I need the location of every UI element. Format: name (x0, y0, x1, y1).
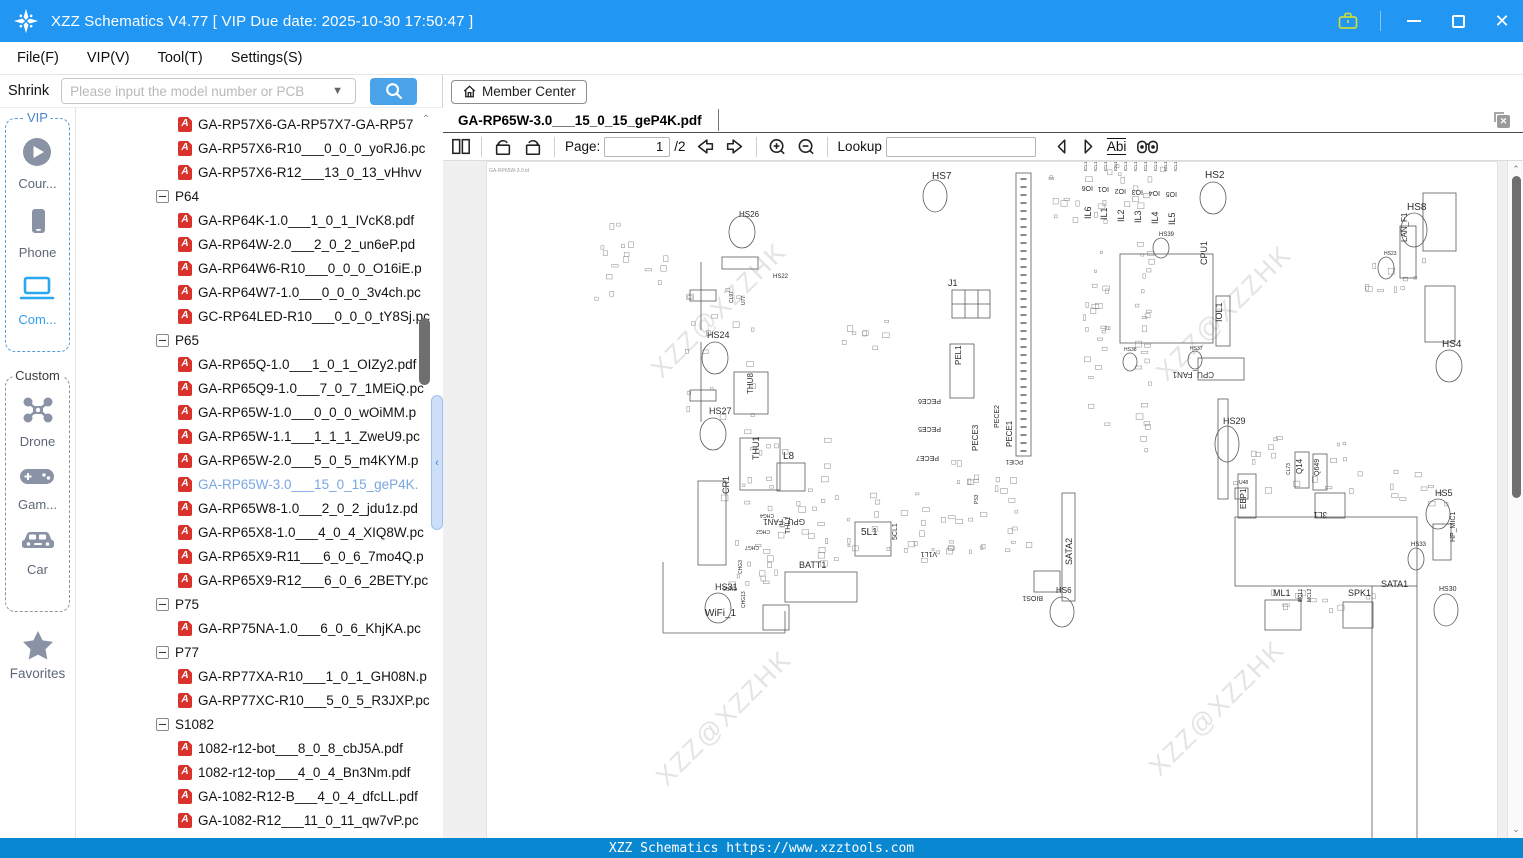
sidebar-item-favorites[interactable]: Favorites (0, 630, 75, 681)
page-number-input[interactable] (604, 137, 670, 157)
shrink-button[interactable]: Shrink (8, 83, 49, 99)
svg-text:ICL13: ICL13 (1103, 162, 1108, 171)
svg-text:HS33: HS33 (1411, 542, 1427, 548)
sidebar-item-cour[interactable]: Cour... (18, 135, 56, 191)
svg-text:IO3: IO3 (1132, 188, 1143, 195)
tree-item-label: GA-RP65X8-1.0___4_0_4_XIQ8W.pc (198, 525, 424, 540)
tree-item-label: GA-RP57X6-R10___0_0_0_yoRJ6.pc (198, 141, 425, 156)
tree-item-label: GC-RP64LED-R10___0_0_0_tY8Sj.pc (198, 309, 430, 324)
tree-file-row[interactable]: GA-1082-R12-B___4_0_4_dfcLL.pdf (76, 784, 443, 808)
tree-group-row[interactable]: P75 (76, 592, 443, 616)
find-prev-icon[interactable] (1053, 137, 1071, 156)
pdf-file-icon (178, 429, 192, 444)
tree-item-label: 1082-r12-top___4_0_4_Bn3Nm.pdf (198, 765, 410, 780)
svg-text:Q649: Q649 (1314, 459, 1321, 476)
tree-item-label: P64 (175, 189, 199, 204)
pdf-file-icon (178, 453, 192, 468)
svg-text:HS26: HS26 (739, 210, 760, 219)
collapse-minus-icon[interactable] (156, 646, 169, 659)
pdf-file-icon (178, 669, 192, 684)
tree-item-label: GA-RP65W-1.1___1_1_1_ZweU9.pc (198, 429, 420, 444)
pdf-file-icon (178, 213, 192, 228)
status-bar: XZZ Schematics https://www.xzztools.com (0, 838, 1523, 858)
match-case-toggle[interactable]: Abi (1107, 138, 1127, 155)
tree-file-row[interactable]: GA-RP64K-1.0___1_0_1_IVcK8.pdf (76, 208, 443, 232)
svg-text:IL1: IL1 (1099, 207, 1109, 220)
tree-item-label: 1082-r12-bot___8_0_8_cbJ5A.pdf (198, 741, 403, 756)
svg-text:CHG6: CHG6 (723, 585, 737, 591)
svg-text:MCL1: MCL1 (1298, 588, 1304, 602)
board-outlines (663, 173, 1462, 838)
pdf-file-icon (178, 285, 192, 300)
svg-text:XZZ@XZZHK: XZZ@XZZHK (650, 644, 798, 792)
play-circle-icon (20, 135, 54, 174)
pdf-file-icon (178, 165, 192, 180)
search-button[interactable] (370, 78, 417, 105)
svg-text:HP_MIC1: HP_MIC1 (1450, 512, 1457, 542)
lookup-label: Lookup (838, 139, 882, 154)
svg-text:HS2: HS2 (1205, 170, 1225, 181)
sidebar-item-car[interactable]: Car (19, 525, 57, 577)
pdf-file-icon (178, 357, 192, 372)
scroll-up-icon[interactable]: ⌃ (1508, 164, 1523, 175)
tree-item-label: GA-1082-R12___11_0_11_qw7vP.pc (198, 813, 419, 828)
component-labels: HS7HS26HS22HS24HS27L8HS31WiFi_1BATT15L1J… (705, 162, 1462, 619)
file-tree: GA-RP57X6-GA-RP57X7-GA-RP57GA-RP57X6-R10… (76, 108, 443, 838)
sidebar-item-label: Car (27, 562, 48, 577)
tree-item-label: P77 (175, 645, 199, 660)
sidebar-group-label: Custom (12, 368, 63, 383)
pdf-file-icon (178, 813, 192, 828)
home-icon (462, 84, 477, 99)
search-icon (384, 81, 404, 101)
svg-text:L8: L8 (783, 451, 795, 462)
svg-text:IL2: IL2 (1116, 209, 1126, 222)
svg-text:EBP1: EBP1 (1239, 488, 1248, 509)
tree-group-row[interactable]: P77 (76, 640, 443, 664)
svg-text:SATA1: SATA1 (1381, 579, 1408, 589)
svg-text:IOL1: IOL1 (1214, 302, 1224, 322)
svg-text:U48: U48 (1239, 480, 1248, 486)
svg-text:PECE2: PECE2 (994, 405, 1001, 428)
tree-file-row[interactable]: GA-RP65X9-R12___6_0_6_2BETY.pc (76, 568, 443, 592)
tree-file-row[interactable]: GA-RP77XC-R10___5_0_5_R3JXP.pc (76, 688, 443, 712)
collapse-minus-icon[interactable] (156, 334, 169, 347)
svg-text:U77: U77 (741, 296, 747, 305)
search-box: ▼ (61, 78, 356, 104)
phone-icon (21, 204, 55, 243)
tree-scrollbar-thumb[interactable] (419, 318, 430, 385)
tree-file-row[interactable]: GA-RP65W-3.0___15_0_15_geP4K. (76, 472, 443, 496)
pdf-page[interactable]: XZZ@XZZHKXZZ@XZZHKXZZ@XZZHKXZZ@XZZHKGA-R… (487, 162, 1497, 838)
tree-item-label: GA-RP64K-1.0___1_0_1_IVcK8.pdf (198, 213, 414, 228)
svg-text:PECE7: PECE7 (916, 454, 939, 461)
tree-file-row[interactable]: GA-RP57X6-R10___0_0_0_yoRJ6.pc (76, 136, 443, 160)
tree-item-label: GA-RP64W-2.0___2_0_2_un6eP.pd (198, 237, 415, 252)
tree-item-label: S1082 (175, 717, 214, 732)
tree-item-label: GA-RP65X9-R11___6_0_6_7mo4Q.p (198, 549, 424, 564)
svg-text:THU1: THU1 (751, 436, 761, 460)
svg-text:IL6: IL6 (1083, 206, 1093, 219)
find-next-icon[interactable] (1079, 137, 1097, 156)
svg-text:PECE6: PECE6 (918, 397, 941, 404)
svg-text:ML1: ML1 (1273, 588, 1291, 598)
star-icon (22, 630, 54, 665)
svg-text:PECE1: PECE1 (1005, 420, 1014, 447)
sidebar-item-label: Phone (19, 245, 57, 260)
svg-text:HS29: HS29 (1223, 416, 1246, 426)
license-briefcase-icon[interactable] (1338, 12, 1358, 30)
panel-collapse-handle[interactable]: ‹ (431, 395, 443, 530)
svg-text:IO2: IO2 (1115, 187, 1126, 194)
rotate-right-icon[interactable] (522, 137, 544, 157)
svg-text:Q14: Q14 (1295, 458, 1304, 474)
collapse-minus-icon[interactable] (156, 190, 169, 203)
sidebar-group-custom: CustomDroneGam...Car (5, 376, 70, 612)
svg-text:HS4: HS4 (1442, 339, 1462, 350)
svg-text:HS37: HS37 (1190, 346, 1203, 352)
page-corner-label: GA-RP65W-3.0.td (489, 168, 529, 174)
sidebar-item-drone[interactable]: Drone (20, 393, 56, 449)
gamepad-icon (18, 462, 56, 495)
svg-text:IL4: IL4 (1150, 211, 1160, 224)
tree-item-label: GA-RP75NA-1.0___6_0_6_KhjKA.pc (198, 621, 421, 636)
title-bar: XZZ Schematics V4.77 [ VIP Due date: 202… (0, 0, 1523, 42)
svg-text:CL97: CL97 (729, 291, 735, 303)
svg-text:J1: J1 (948, 278, 958, 288)
svg-text:HS6: HS6 (1056, 586, 1072, 595)
tree-item-label: P75 (175, 597, 199, 612)
tree-item-label: GA-RP57X6-R12___13_0_13_vHhvv (198, 165, 422, 180)
tree-file-row[interactable]: GA-RP75NA-1.0___6_0_6_KhjKA.pc (76, 616, 443, 640)
svg-text:IL3: IL3 (1133, 210, 1143, 223)
svg-text:BATT1: BATT1 (799, 560, 826, 570)
search-input[interactable] (70, 84, 332, 99)
svg-text:HS38: HS38 (1124, 347, 1137, 353)
svg-text:CPU_FAN1: CPU_FAN1 (1172, 370, 1214, 379)
tab-bar: GA-RP65W-3.0___15_0_15_geP4K.pdf ✕ (443, 108, 1523, 133)
svg-text:5L1: 5L1 (861, 527, 878, 538)
svg-text:ICL15: ICL15 (1123, 162, 1128, 171)
tree-group-row[interactable]: S1082 (76, 712, 443, 736)
svg-text:CHG3: CHG3 (738, 560, 744, 574)
tree-file-row[interactable]: GA-RP65W-1.0___0_0_0_wOiMM.p (76, 400, 443, 424)
svg-text:WiFi_1: WiFi_1 (705, 608, 737, 619)
app-logo-icon (11, 6, 41, 36)
rotate-left-icon[interactable] (492, 137, 514, 157)
svg-text:CHG2: CHG2 (756, 528, 770, 534)
tree-file-row[interactable]: GA-RP65W-1.1___1_1_1_ZweU9.pc (76, 424, 443, 448)
svg-text:HS30: HS30 (1439, 586, 1457, 593)
svg-text:LAN_F1: LAN_F1 (1400, 212, 1409, 242)
svg-text:ICL14: ICL14 (1113, 162, 1118, 171)
svg-text:ICL16: ICL16 (1133, 162, 1138, 171)
tree-file-row[interactable]: GA-RP57X6-GA-RP57X7-GA-RP57 (76, 112, 443, 136)
tree-file-row[interactable]: GA-RP65X8-1.0___4_0_4_XIQ8W.pc (76, 520, 443, 544)
svg-text:V1L1: V1L1 (921, 550, 937, 557)
tree-file-row[interactable]: GA-RP65W8-1.0___2_0_2_jdu1z.pd (76, 496, 443, 520)
sidebar-item-label: Com... (18, 312, 56, 327)
svg-text:PECE3: PECE3 (971, 424, 980, 451)
sidebar-item-label: Favorites (10, 666, 66, 681)
svg-text:HS8: HS8 (1407, 202, 1427, 213)
tree-file-row[interactable]: GA-RP64W7-1.0___0_0_0_3v4ch.pc (76, 280, 443, 304)
zoom-in-icon[interactable] (767, 137, 788, 157)
pdf-file-icon (178, 789, 192, 804)
svg-text:ICL12: ICL12 (1093, 162, 1098, 171)
tree-file-row[interactable]: GA-RP65W-2.0___5_0_5_m4KYM.p (76, 448, 443, 472)
titlebar-separator (1380, 11, 1381, 31)
tree-file-row[interactable]: GA-RP65Q9-1.0___7_0_7_1MEiQ.pc (76, 376, 443, 400)
member-row: Member Center (443, 75, 1523, 108)
svg-text:ICL10: ICL10 (1173, 162, 1178, 171)
pdf-file-icon (178, 309, 192, 324)
zoom-out-icon[interactable] (796, 137, 817, 157)
pdf-file-icon (178, 549, 192, 564)
sidebar-item-com[interactable]: Com... (18, 273, 56, 327)
next-page-icon[interactable] (724, 137, 746, 156)
svg-text:THU8: THU8 (746, 373, 755, 394)
pdf-file-icon (178, 117, 192, 132)
pdf-file-icon (178, 765, 192, 780)
viewer-scrollbar[interactable]: ⌃ ⌄ (1507, 161, 1523, 838)
svg-text:ICL11: ICL11 (1083, 162, 1088, 171)
tree-file-row[interactable]: GC-RP64LED-R10___0_0_0_tY8Sj.pc (76, 304, 443, 328)
svg-text:IO4: IO4 (1149, 189, 1160, 196)
tab-active-pdf[interactable]: GA-RP65W-3.0___15_0_15_geP4K.pdf (458, 109, 719, 131)
menu-item-vipv[interactable]: VIP(V) (73, 50, 144, 66)
svg-text:ICL18: ICL18 (1153, 162, 1158, 171)
svg-text:XZZ@XZZHK: XZZ@XZZHK (1143, 634, 1291, 782)
svg-text:CHG7: CHG7 (745, 544, 759, 550)
svg-text:CR1: CR1 (721, 476, 731, 494)
tree-file-row[interactable]: 1082-r12-bot___8_0_8_cbJ5A.pdf (76, 736, 443, 760)
chevron-down-icon[interactable]: ▼ (332, 85, 343, 97)
tree-file-row[interactable]: 1082-r12-top___4_0_4_Bn3Nm.pdf (76, 760, 443, 784)
collapse-minus-icon[interactable] (156, 718, 169, 731)
sidebar-group-label: VIP (24, 110, 51, 125)
window-title: XZZ Schematics V4.77 [ VIP Due date: 202… (51, 13, 473, 30)
tree-item-label: GA-RP65Q9-1.0___7_0_7_1MEiQ.pc (198, 381, 424, 396)
laptop-icon (19, 273, 55, 310)
svg-text:HS7: HS7 (932, 171, 952, 182)
tree-item-label: GA-RP65W-1.0___0_0_0_wOiMM.p (198, 405, 416, 420)
sidebar-group-vip: VIPCour...PhoneCom... (5, 118, 70, 352)
close-button[interactable]: ✕ (1491, 10, 1513, 32)
tree-item-label: GA-RP77XC-R10___5_0_5_R3JXP.pc (198, 693, 430, 708)
tree-file-row[interactable]: GA-RP77XA-R10___1_0_1_GH08N.p (76, 664, 443, 688)
tree-file-row[interactable]: GA-RP65Q-1.0___1_0_1_OIZy2.pdf (76, 352, 443, 376)
component-noise (595, 165, 1448, 613)
svg-text:HS22: HS22 (773, 274, 789, 280)
svg-text:CHG4: CHG4 (760, 512, 774, 518)
svg-text:PCIE1: PCIE1 (1005, 458, 1023, 464)
facing-pages-icon[interactable] (451, 137, 471, 156)
car-icon (19, 525, 57, 560)
svg-text:PS3: PS3 (974, 494, 980, 504)
svg-text:CPU1: CPU1 (1199, 241, 1209, 265)
pdf-file-icon (178, 501, 192, 516)
search-row: Shrink ▼ (0, 75, 443, 108)
tree-file-row[interactable]: GA-1082-R12___11_0_11_qw7vP.pc (76, 808, 443, 832)
pdf-file-icon (178, 525, 192, 540)
sidebar-item-label: Cour... (18, 176, 56, 191)
pdf-viewer: GA-RP65W-3.0___15_0_15_geP4K.pdf ✕ Page:… (443, 108, 1523, 838)
pdf-file-icon (178, 621, 192, 636)
svg-text:HS39: HS39 (1159, 232, 1175, 238)
svg-text:XZZ@XZZHK: XZZ@XZZHK (645, 236, 793, 384)
tree-item-label: GA-RP65W8-1.0___2_0_2_jdu1z.pd (198, 501, 418, 516)
tree-file-row[interactable]: GA-RP57X6-R12___13_0_13_vHhvv (76, 160, 443, 184)
drone-icon (20, 393, 56, 432)
tree-file-row[interactable]: GA-RP65X9-R11___6_0_6_7mo4Q.p (76, 544, 443, 568)
tree-group-row[interactable]: P65 (76, 328, 443, 352)
svg-text:SATA2: SATA2 (1064, 538, 1074, 565)
menu-item-settingss[interactable]: Settings(S) (217, 50, 317, 66)
svg-text:MCL2: MCL2 (1307, 588, 1313, 602)
tree-group-row[interactable]: P64 (76, 184, 443, 208)
pdf-file-icon (178, 693, 192, 708)
scroll-down-icon[interactable]: ⌄ (1508, 824, 1523, 835)
sidebar-item-gam[interactable]: Gam... (18, 462, 57, 512)
tree-file-row[interactable]: GA-RP64W6-R10___0_0_0_O16iE.p (76, 256, 443, 280)
pdf-file-icon (178, 573, 192, 588)
status-text: XZZ Schematics https://www.xzztools.com (609, 841, 914, 856)
tree-item-label: GA-RP64W6-R10___0_0_0_O16iE.p (198, 261, 422, 276)
sidebar-item-label: Gam... (18, 497, 57, 512)
lookup-input[interactable] (886, 137, 1036, 157)
tree-item-label: P65 (175, 333, 199, 348)
prev-page-icon[interactable] (694, 137, 716, 156)
menu-item-toolt[interactable]: Tool(T) (144, 50, 217, 66)
svg-text:5CL1: 5CL1 (892, 523, 899, 540)
tree-item-label: GA-RP65W-2.0___5_0_5_m4KYM.p (198, 453, 418, 468)
tree-scroll-up-icon[interactable]: ⌃ (419, 114, 433, 125)
svg-text:SPK1: SPK1 (1348, 588, 1371, 598)
svg-text:IO1: IO1 (1098, 185, 1109, 192)
svg-text:PECE5: PECE5 (918, 425, 941, 432)
tree-item-label: GA-RP57X6-GA-RP57X7-GA-RP57 (198, 117, 413, 132)
sidebar-item-label: Drone (20, 434, 55, 449)
viewer-scrollbar-thumb[interactable] (1512, 176, 1521, 498)
schematic-canvas[interactable]: XZZ@XZZHKXZZ@XZZHKXZZ@XZZHKXZZ@XZZHKGA-R… (487, 162, 1497, 838)
svg-text:PEL1: PEL1 (954, 345, 963, 365)
viewer-toolbar: Page: /2 Lookup Abi (443, 133, 1523, 161)
tree-item-label: GA-1082-R12-B___4_0_4_dfcLL.pdf (198, 789, 418, 804)
page-total: /2 (674, 139, 685, 154)
member-center-label: Member Center (482, 84, 576, 99)
menu-item-filef[interactable]: File(F) (0, 50, 73, 66)
menu-bar: File(F)VIP(V)Tool(T)Settings(S) (0, 42, 1523, 75)
tree-item-label: GA-RP64W7-1.0___0_0_0_3v4ch.pc (198, 285, 421, 300)
page-label: Page: (565, 139, 600, 154)
member-center-button[interactable]: Member Center (451, 80, 587, 104)
pdf-file-icon (178, 477, 192, 492)
pdf-file-icon (178, 381, 192, 396)
svg-text:IO6: IO6 (1082, 184, 1093, 191)
svg-text:HS23: HS23 (1384, 251, 1397, 257)
svg-text:CL73: CL73 (1286, 463, 1292, 475)
tree-item-label: GA-RP65W-3.0___15_0_15_geP4K. (198, 477, 418, 492)
category-sidebar: VIPCour...PhoneCom...CustomDroneGam...Ca… (0, 108, 76, 838)
svg-text:ICL19: ICL19 (1163, 162, 1168, 171)
pdf-file-icon (178, 141, 192, 156)
svg-text:ICL17: ICL17 (1143, 162, 1148, 171)
svg-text:CHG13: CHG13 (741, 591, 747, 608)
pdf-file-icon (178, 261, 192, 276)
svg-text:HS27: HS27 (709, 406, 732, 416)
pdf-file-icon (178, 741, 192, 756)
pdf-file-icon (178, 405, 192, 420)
tree-item-label: GA-RP65Q-1.0___1_0_1_OIZy2.pdf (198, 357, 416, 372)
minimize-button[interactable] (1403, 10, 1425, 32)
svg-text:HS24: HS24 (707, 330, 730, 340)
pdf-file-icon (178, 237, 192, 252)
svg-text:IO5: IO5 (1166, 190, 1177, 197)
close-all-tabs-icon[interactable]: ✕ (1494, 112, 1510, 128)
svg-text:HS5: HS5 (1435, 488, 1453, 498)
sidebar-item-phone[interactable]: Phone (19, 204, 57, 260)
svg-text:BIOS1: BIOS1 (1022, 594, 1043, 601)
tree-file-row[interactable]: GA-RP64W-2.0___2_0_2_un6eP.pd (76, 232, 443, 256)
tree-item-label: GA-RP65X9-R12___6_0_6_2BETY.pc (198, 573, 428, 588)
maximize-button[interactable] (1447, 10, 1469, 32)
watermarks: XZZ@XZZHKXZZ@XZZHKXZZ@XZZHKXZZ@XZZHK (645, 236, 1298, 792)
viewer-content: XZZ@XZZHKXZZ@XZZHKXZZ@XZZHKXZZ@XZZHKGA-R… (443, 161, 1523, 838)
svg-text:IL5: IL5 (1167, 212, 1177, 225)
svg-text:3L1: 3L1 (1313, 510, 1327, 519)
tree-item-label: GA-RP77XA-R10___1_0_1_GH08N.p (198, 669, 427, 684)
whole-word-binoculars-icon[interactable] (1136, 137, 1159, 156)
collapse-minus-icon[interactable] (156, 598, 169, 611)
